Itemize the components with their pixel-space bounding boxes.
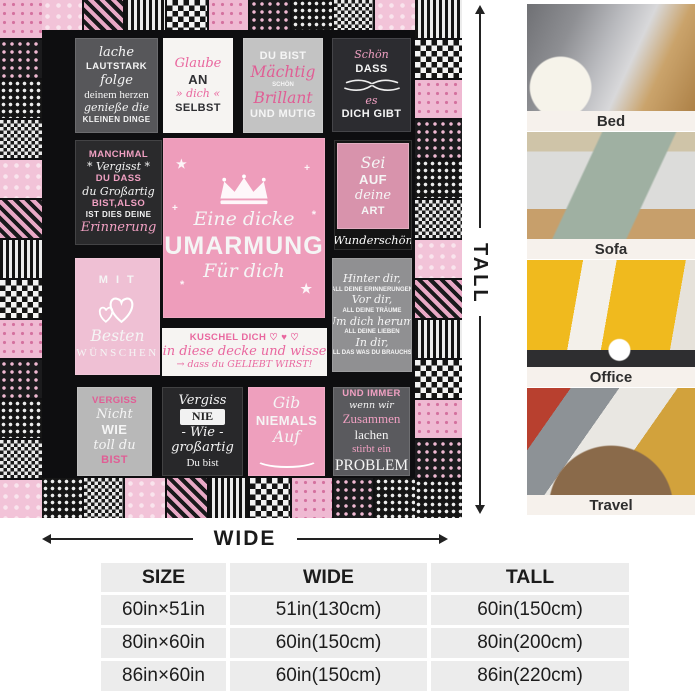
photo-label: Office <box>527 367 695 387</box>
patchwork-tile <box>334 0 374 30</box>
table-cell: 86in(220cm) <box>431 661 629 691</box>
patchwork-tile <box>0 120 42 158</box>
panel-vergiss-nie-grossartig: VergissNIE- Wie -großartigDu bist <box>162 387 243 476</box>
patchwork-tile <box>125 478 165 518</box>
panel-du-bist-maechtig: DU BISTMächtigSCHÖNBrillantUND MUTIG <box>243 38 323 133</box>
panel-manchmal-erinnerung: MANCHMAL* Vergisst *DU DASSdu GroßartigB… <box>75 140 162 245</box>
patchwork-tile <box>0 320 42 358</box>
panel-vergiss-nicht-wie-toll: VERGISSNichtWIEtoll duBIST <box>77 387 152 476</box>
patchwork-tile <box>415 240 462 278</box>
patchwork-tile <box>375 0 415 30</box>
photo-card-office: Office <box>527 260 695 387</box>
patchwork-tile <box>0 80 42 118</box>
panel-lache-lautstark: lacheLAUTSTARKfolgedeinem herzengenieße … <box>75 38 158 133</box>
panel-schoen-dass-es-dich-gibt: SchönDASS esDICH GIBT <box>332 38 411 132</box>
patchwork-border-right <box>415 0 462 518</box>
hearts-icon <box>91 287 145 327</box>
patchwork-tile <box>209 0 249 30</box>
sparkle-icon: ★ <box>176 157 187 171</box>
patchwork-tile <box>0 280 42 318</box>
panel-glaube-an-dich-selbst: GlaubeAN» dich «SELBST <box>163 38 233 133</box>
tall-dimension-arrow: TALL <box>470 0 490 518</box>
open-arms-icon <box>340 76 404 94</box>
arrow-right-icon <box>439 534 448 544</box>
patchwork-border-top <box>42 0 415 30</box>
patchwork-tile <box>84 0 124 30</box>
patchwork-tile <box>292 0 332 30</box>
patchwork-tile <box>167 0 207 30</box>
panel-mit-besten-wuenschen: M I T BestenWÜNSCHEN <box>75 258 160 375</box>
photo-label: Bed <box>527 111 695 131</box>
patchwork-tile <box>415 360 462 398</box>
panel-eine-dicke-umarmung: ★ + * ★ + * Eine dickeUMARMUNGFür dich <box>163 138 325 318</box>
table-header: SIZE <box>101 563 226 592</box>
wide-dimension-arrow: WIDE <box>42 526 448 552</box>
patchwork-tile <box>125 0 165 30</box>
table-cell: 60in(150cm) <box>431 595 629 625</box>
bed-photo <box>527 4 695 111</box>
table-row: 86in×60in60in(150cm)86in(220cm) <box>101 661 629 691</box>
patchwork-tile <box>209 478 249 518</box>
patchwork-tile <box>0 200 42 238</box>
size-table-wrap: SIZEWIDETALL 60in×51in51in(130cm)60in(15… <box>97 560 633 694</box>
photo-card-bed: Bed <box>527 4 695 131</box>
travel-photo <box>527 388 695 495</box>
patchwork-tile <box>415 440 462 478</box>
patchwork-tile <box>0 480 42 518</box>
patchwork-tile <box>415 160 462 198</box>
table-cell: 60in(150cm) <box>230 628 427 658</box>
table-cell: 86in×60in <box>101 661 226 691</box>
table-cell: 51in(130cm) <box>230 595 427 625</box>
table-header: TALL <box>431 563 629 592</box>
patchwork-tile <box>415 80 462 118</box>
patchwork-tile <box>0 440 42 478</box>
sparkle-icon: + <box>172 203 178 214</box>
blanket-product-image: lacheLAUTSTARKfolgedeinem herzengenieße … <box>0 0 462 518</box>
panel-sei-auf-deine-art: SeiAUFdeineART Wunderschön <box>334 140 412 250</box>
quilt-core: lacheLAUTSTARKfolgedeinem herzengenieße … <box>42 30 415 478</box>
patchwork-tile <box>167 478 207 518</box>
table-cell: 80in(200cm) <box>431 628 629 658</box>
panel-und-immer-problem: UND IMMERwenn wirZusammenlachenstirbt ei… <box>333 387 410 476</box>
wide-label: WIDE <box>193 527 297 551</box>
patchwork-tile <box>415 400 462 438</box>
patchwork-tile <box>334 478 374 518</box>
swoosh-arrow-icon <box>255 450 319 468</box>
patchwork-tile <box>415 200 462 238</box>
table-cell: 60in(150cm) <box>230 661 427 691</box>
patchwork-tile <box>415 40 462 78</box>
arrow-down-icon <box>475 505 485 514</box>
patchwork-border-bottom <box>42 478 415 518</box>
sparkle-icon: * <box>180 279 184 291</box>
patchwork-tile <box>415 120 462 158</box>
patchwork-tile <box>42 0 82 30</box>
table-header: WIDE <box>230 563 427 592</box>
patchwork-tile <box>42 478 82 518</box>
panel-kuschel-dich: KUSCHEL DICH ♡ ♥ ♡in diese decke und wis… <box>162 328 327 376</box>
patchwork-tile <box>250 478 290 518</box>
tall-label: TALL <box>469 232 491 316</box>
table-row: 80in×60in60in(150cm)80in(200cm) <box>101 628 629 658</box>
panel-caption: Wunderschön <box>334 233 412 247</box>
patchwork-tile <box>375 478 415 518</box>
office-photo <box>527 260 695 367</box>
photo-card-travel: Travel <box>527 388 695 515</box>
panel-gib-niemals-auf: GibNIEMALSAuf <box>248 387 325 476</box>
crown-icon <box>209 174 279 206</box>
patchwork-tile <box>292 478 332 518</box>
patchwork-tile <box>0 0 42 38</box>
table-header-row: SIZEWIDETALL <box>101 563 629 592</box>
table-row: 60in×51in51in(130cm)60in(150cm) <box>101 595 629 625</box>
sparkle-icon: + <box>304 163 310 174</box>
patchwork-border-left <box>0 0 42 518</box>
size-table: SIZEWIDETALL 60in×51in51in(130cm)60in(15… <box>97 560 633 694</box>
product-image: lacheLAUTSTARKfolgedeinem herzengenieße … <box>0 0 700 700</box>
patchwork-tile <box>415 280 462 318</box>
table-cell: 60in×51in <box>101 595 226 625</box>
patchwork-tile <box>250 0 290 30</box>
patchwork-tile <box>415 0 462 38</box>
table-cell: 80in×60in <box>101 628 226 658</box>
patchwork-tile <box>0 400 42 438</box>
patchwork-tile <box>415 320 462 358</box>
sparkle-icon: * <box>312 209 316 221</box>
sofa-photo <box>527 132 695 239</box>
photo-label: Travel <box>527 495 695 515</box>
patchwork-tile <box>415 480 462 518</box>
patchwork-tile <box>0 160 42 198</box>
sparkle-icon: ★ <box>300 281 312 297</box>
patchwork-tile <box>0 240 42 278</box>
patchwork-tile <box>0 360 42 398</box>
lifestyle-photos-column: Bed Sofa Office Travel <box>527 4 695 515</box>
photo-label: Sofa <box>527 239 695 259</box>
photo-card-sofa: Sofa <box>527 132 695 259</box>
panel-hinter-dir: Hinter dir,ALL DEINE ERINNERUNGENVor dir… <box>332 258 412 372</box>
patchwork-tile <box>0 40 42 78</box>
patchwork-tile <box>84 478 124 518</box>
